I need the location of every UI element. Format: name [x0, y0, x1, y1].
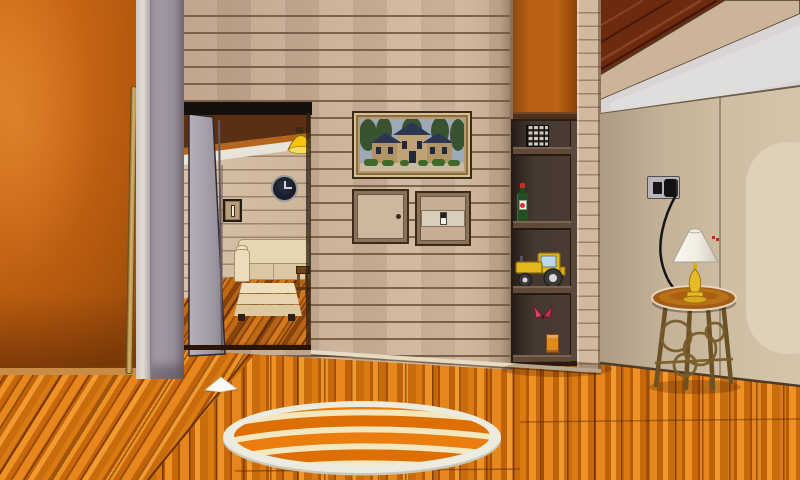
- brick-column: [577, 0, 601, 372]
- sofa-cushion-split: [273, 264, 274, 279]
- shelf-board: [513, 147, 571, 156]
- ottoman-foot: [238, 314, 245, 321]
- toy-tractor[interactable]: [512, 245, 568, 289]
- red-mark[interactable]: [712, 236, 720, 242]
- house-picture-art: [360, 119, 464, 171]
- gray-pillar: [151, 0, 184, 379]
- shelf-back: [514, 121, 570, 361]
- door-frame-right: [306, 113, 311, 349]
- wine-bottle-red[interactable]: [517, 183, 528, 221]
- door-frame-top: [171, 102, 312, 115]
- open-door[interactable]: [186, 106, 230, 358]
- wall-cabinet-dials[interactable]: [415, 191, 471, 246]
- door-jamb: [136, 0, 151, 379]
- dial-5[interactable]: [440, 212, 447, 225]
- keypad[interactable]: [526, 125, 549, 147]
- orange-wall-baseboard: [0, 366, 137, 375]
- shelf-board: [513, 286, 571, 295]
- sofa-armrest: [234, 249, 250, 282]
- orange-wall: [0, 0, 137, 375]
- wall-highlight: [746, 142, 800, 354]
- ottoman[interactable]: [234, 283, 302, 316]
- escape-room-scene: [0, 0, 800, 480]
- paper-note[interactable]: [200, 372, 244, 396]
- butterfly[interactable]: [533, 305, 553, 320]
- ottoman-foot: [288, 314, 295, 321]
- house-picture[interactable]: [352, 111, 472, 179]
- cabinet-knob[interactable]: [396, 214, 401, 219]
- wine-bottles[interactable]: [517, 183, 571, 221]
- clock-hour-hand: [285, 187, 292, 189]
- shelf-board: [513, 221, 571, 230]
- wall-clock[interactable]: [271, 175, 298, 202]
- dial-panel[interactable]: [421, 210, 465, 227]
- coffee-table-leg: [297, 274, 300, 298]
- shelf-unit[interactable]: [511, 119, 579, 366]
- wall-cabinet-closed[interactable]: [352, 189, 409, 244]
- striped-rug[interactable]: [221, 399, 505, 479]
